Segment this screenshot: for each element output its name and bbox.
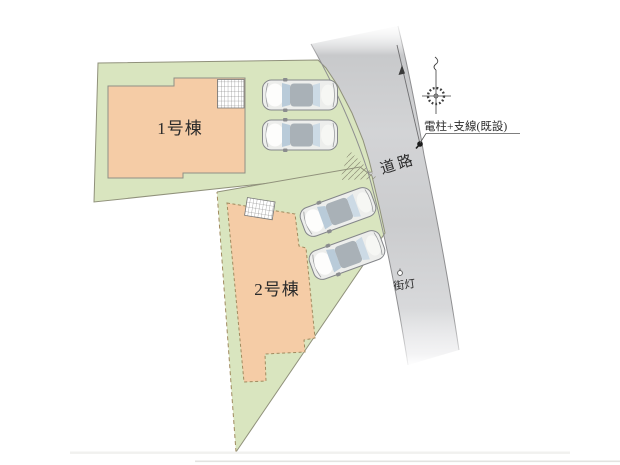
building-2-label: 2号棟 — [254, 280, 300, 299]
building-1-label: 1号棟 — [157, 119, 203, 138]
utility-pole-leader — [420, 134, 520, 144]
car-icon — [263, 78, 338, 112]
building-1-porch-grid — [218, 80, 245, 109]
site-plan-canvas: 1号棟 2号棟 道路 電柱+支線(既設) 街灯 — [0, 0, 620, 465]
bottom-artifact-line — [70, 452, 570, 454]
site-plan: 1号棟 2号棟 道路 電柱+支線(既設) 街灯 — [0, 0, 620, 465]
car-icon — [263, 118, 338, 152]
bottom-artifact-line — [195, 461, 620, 463]
building-2-porch-grid — [245, 198, 275, 220]
compass-icon — [422, 57, 451, 114]
utility-pole-label: 電柱+支線(既設) — [424, 119, 507, 133]
